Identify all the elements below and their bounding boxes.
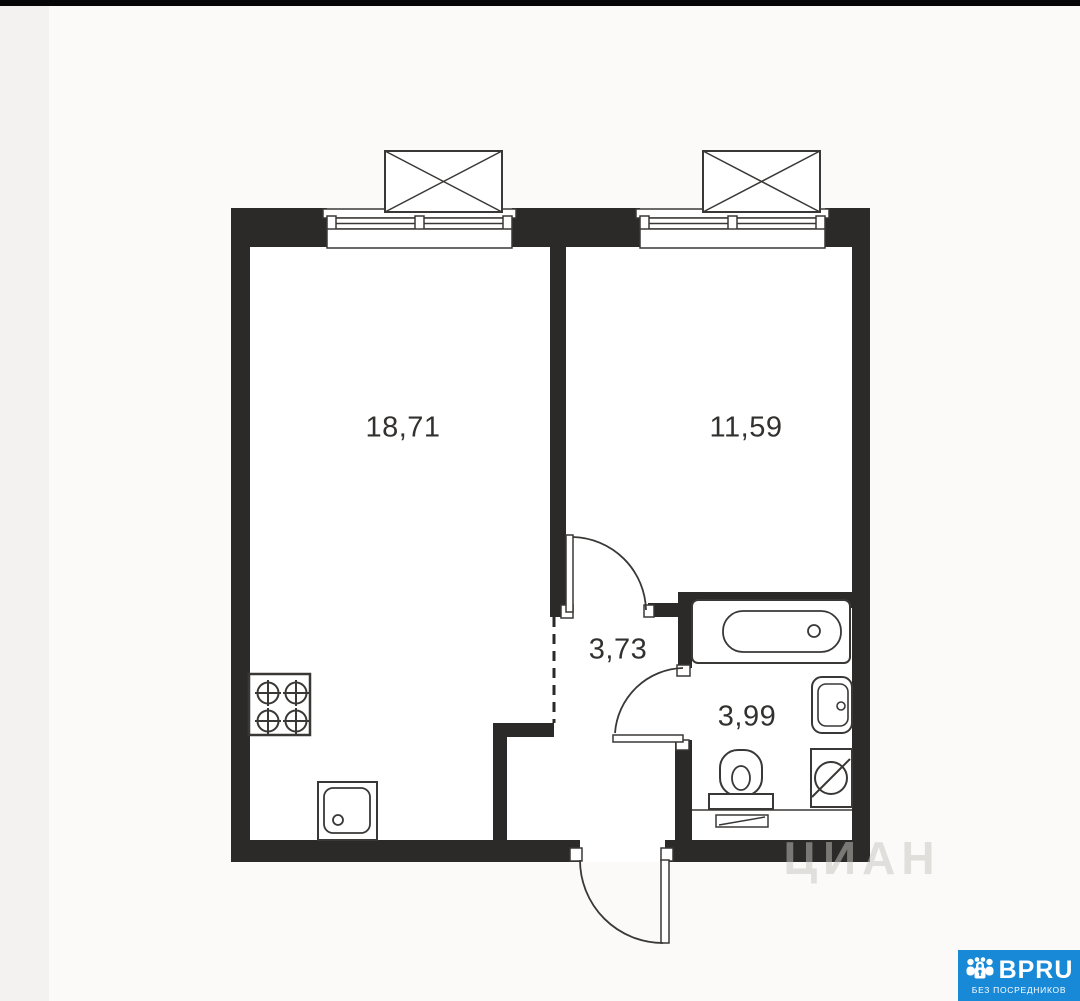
people-with-lock-icon bbox=[965, 956, 995, 984]
balcony-box-left bbox=[385, 151, 502, 212]
logo-tagline-text: БЕЗ ПОСРЕДНИКОВ bbox=[972, 986, 1066, 995]
area-label-bathroom: 3,99 bbox=[718, 701, 776, 734]
area-label-bedroom: 11,59 bbox=[710, 412, 783, 445]
bathtub bbox=[692, 600, 850, 663]
watermark: ЦИАН bbox=[783, 831, 940, 885]
balcony-box-right bbox=[703, 151, 820, 212]
window-left bbox=[323, 209, 516, 248]
bpru-logo: BPRU БЕЗ ПОСРЕДНИКОВ bbox=[958, 950, 1080, 1001]
floorplan-image: 18,71 11,59 3,73 3,99 ЦИАН BPRU bbox=[0, 0, 1080, 1001]
bathroom-sink bbox=[812, 677, 852, 733]
stove-icon bbox=[249, 674, 310, 735]
area-label-hallway: 3,73 bbox=[589, 634, 647, 667]
area-label-living-room: 18,71 bbox=[365, 412, 440, 445]
washing-machine bbox=[811, 749, 852, 807]
window-right bbox=[636, 209, 829, 248]
entry-door bbox=[570, 848, 673, 943]
logo-brand-text: BPRU bbox=[999, 958, 1074, 983]
kitchen-sink bbox=[318, 782, 377, 840]
